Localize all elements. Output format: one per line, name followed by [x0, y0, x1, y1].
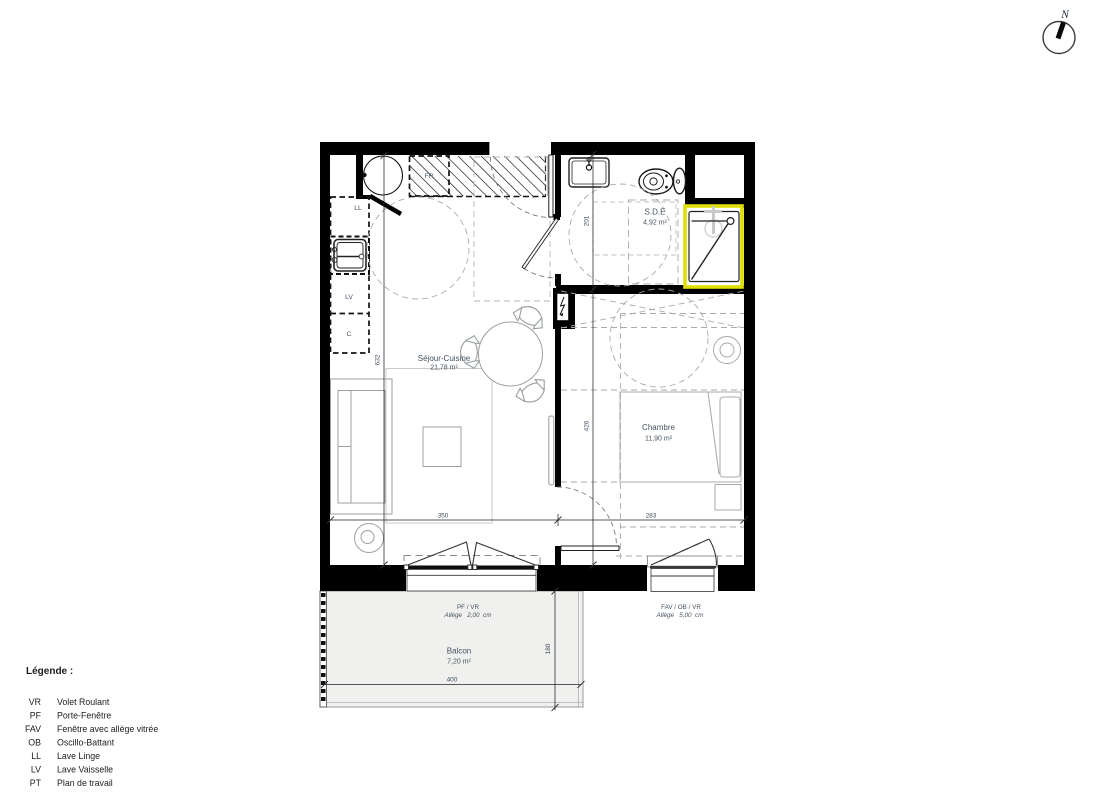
svg-text:Séjour-Cuisine: Séjour-Cuisine: [418, 354, 471, 363]
svg-text:180: 180: [545, 643, 552, 654]
svg-text:Allège 2,00 cm: Allège 2,00 cm: [444, 612, 492, 619]
svg-text:PT: PT: [30, 778, 42, 788]
svg-text:C: C: [347, 331, 352, 338]
svg-text:Oscillo-Battant: Oscillo-Battant: [57, 738, 115, 748]
svg-text:FAV / OB / VR: FAV / OB / VR: [661, 604, 701, 611]
svg-text:PF / VR: PF / VR: [457, 604, 479, 611]
svg-text:FR: FR: [424, 173, 433, 180]
svg-text:LL: LL: [354, 205, 362, 212]
svg-text:632: 632: [375, 354, 382, 365]
svg-text:Plan de travail: Plan de travail: [57, 778, 113, 788]
svg-text:Lave Linge: Lave Linge: [57, 751, 100, 761]
svg-text:7,20 m²: 7,20 m²: [447, 659, 471, 666]
svg-text:400: 400: [447, 677, 458, 684]
svg-text:426: 426: [584, 420, 591, 431]
svg-text:Volet Roulant: Volet Roulant: [57, 697, 110, 707]
svg-text:LV: LV: [345, 294, 353, 301]
svg-text:Balcon: Balcon: [447, 647, 471, 656]
svg-text:350: 350: [438, 513, 449, 520]
svg-text:PF: PF: [30, 711, 42, 721]
svg-text:283: 283: [646, 513, 657, 520]
svg-text:FAV: FAV: [25, 724, 41, 734]
svg-text:OB: OB: [28, 738, 41, 748]
svg-text:4,92 m²: 4,92 m²: [643, 220, 667, 227]
svg-text:Allège 5,00 cm: Allège 5,00 cm: [656, 612, 704, 619]
svg-text:LL: LL: [31, 751, 41, 761]
svg-text:Lave Vaisselle: Lave Vaisselle: [57, 765, 113, 775]
svg-text:21,78 m²: 21,78 m²: [430, 365, 458, 372]
svg-text:VR: VR: [29, 697, 41, 707]
svg-text:Chambre: Chambre: [642, 423, 675, 432]
svg-text:Légende :: Légende :: [26, 666, 73, 677]
svg-text:Porte-Fenêtre: Porte-Fenêtre: [57, 711, 111, 721]
svg-text:Fenêtre avec allège vitrée: Fenêtre avec allège vitrée: [57, 724, 158, 734]
svg-text:S.D.E: S.D.E: [645, 208, 666, 217]
svg-text:11,90 m²: 11,90 m²: [645, 436, 673, 443]
svg-text:201: 201: [584, 215, 591, 226]
svg-text:N: N: [1060, 9, 1070, 21]
svg-text:LV: LV: [31, 765, 41, 775]
